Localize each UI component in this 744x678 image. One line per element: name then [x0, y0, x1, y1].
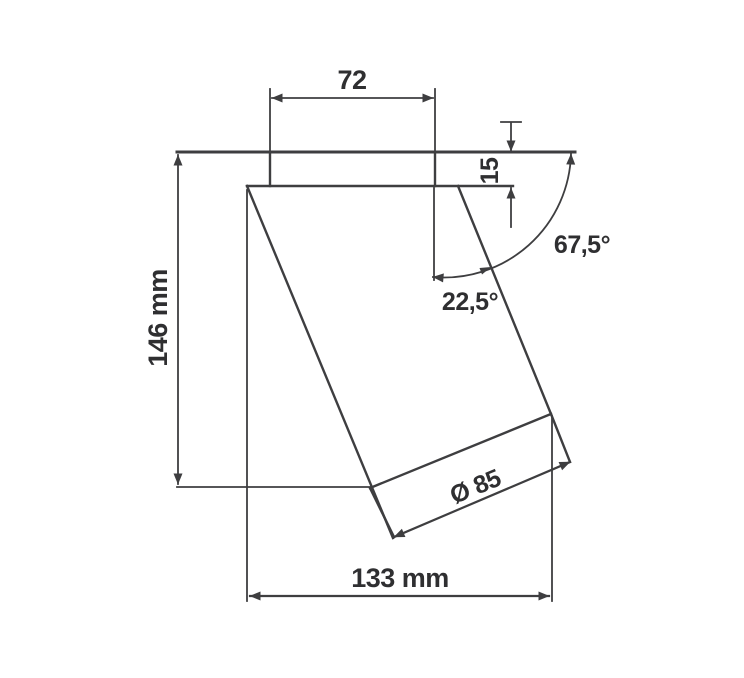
dim-label-overall-height: 146 mm [143, 269, 173, 367]
dim-label-angle-22-5: 22,5° [442, 288, 498, 316]
spotlight-dimension-drawing: 72 15 146 mm 133 mm Ø 85 67,5° 22,5° [0, 0, 744, 678]
arc-crossing-arrowhead [480, 267, 492, 275]
body-left-edge [247, 186, 393, 538]
head-rim-right-edge [551, 414, 570, 462]
dim-label-canopy-height: 15 [476, 157, 504, 184]
head-rim-left-edge [370, 488, 394, 537]
dim-label-overall-width: 133 mm [351, 563, 449, 593]
dimension-drawing-canvas: 72 15 146 mm 133 mm Ø 85 67,5° 22,5° [0, 0, 744, 678]
dim-label-angle-67-5: 67,5° [554, 231, 610, 259]
dim-label-top-width: 72 [337, 65, 366, 95]
